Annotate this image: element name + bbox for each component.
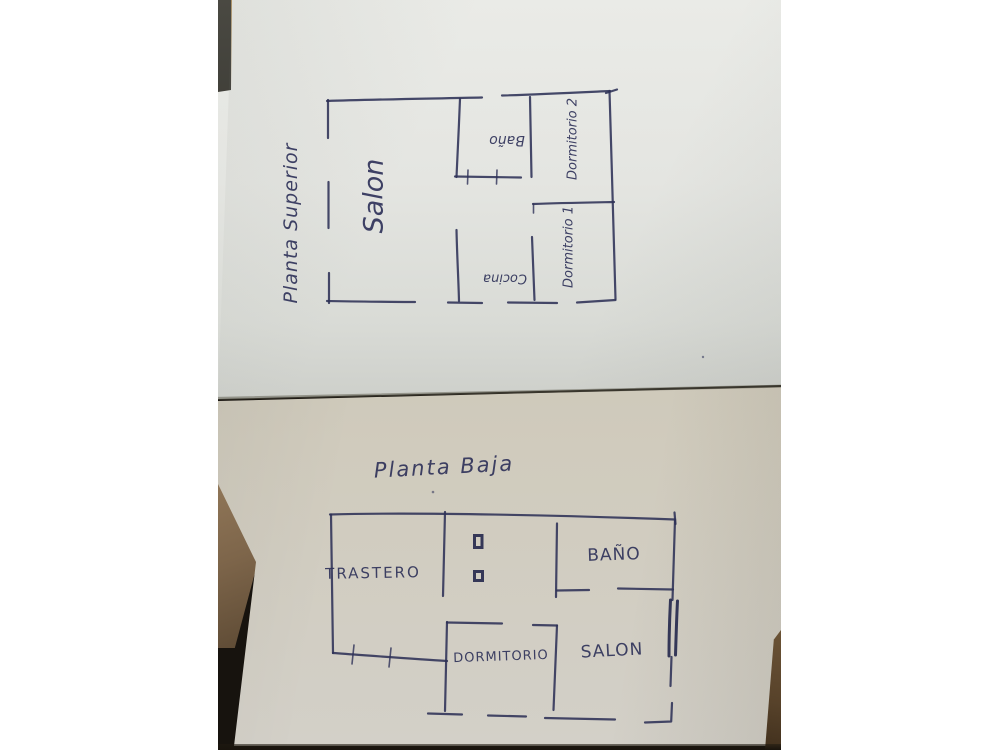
stair-mark xyxy=(475,572,483,581)
wall xyxy=(488,716,526,717)
door-tick xyxy=(352,645,354,664)
pen-dot xyxy=(702,356,704,358)
interior-wall xyxy=(554,626,558,711)
door-leaf xyxy=(669,600,671,656)
upper-plan-title: Planta Superior xyxy=(280,142,302,303)
pen-dot xyxy=(432,491,435,494)
wall xyxy=(545,718,615,720)
door-tick xyxy=(389,648,391,667)
room-label-cocina: Cocina xyxy=(483,271,527,286)
door-leaf xyxy=(676,601,678,655)
photo-of-sketches: Planta Superior Salon Baño Cocina Dormit… xyxy=(218,0,781,750)
wall xyxy=(610,91,616,299)
room-label-bano: BAÑO xyxy=(587,542,641,566)
lower-plan-labels: Planta Baja TRASTERO BAÑO DORMITORIO SAL… xyxy=(324,451,644,666)
room-label-salon: Salon xyxy=(359,159,390,234)
interior-wall xyxy=(533,202,614,204)
wall xyxy=(577,300,616,303)
interior-wall xyxy=(618,589,673,590)
interior-wall xyxy=(443,512,445,596)
lower-plan-title: Planta Baja xyxy=(373,451,515,482)
wall xyxy=(327,98,482,102)
wall xyxy=(673,520,676,601)
wall xyxy=(448,303,482,304)
room-label-trastero: TRASTERO xyxy=(324,563,421,583)
room-label-salon: SALON xyxy=(580,639,644,662)
wall xyxy=(508,303,557,304)
room-label-dormitorio: DORMITORIO xyxy=(453,648,549,666)
interior-wall xyxy=(457,99,461,177)
interior-wall xyxy=(556,524,557,598)
wall xyxy=(428,714,462,715)
wall xyxy=(502,91,610,96)
upper-plan-labels: Planta Superior Salon Baño Cocina Dormit… xyxy=(280,98,581,303)
wall xyxy=(327,301,415,302)
interior-wall xyxy=(447,623,502,624)
wall xyxy=(330,514,675,520)
interior-wall xyxy=(455,177,521,178)
interior-wall xyxy=(557,590,589,591)
room-label-bano: Baño xyxy=(489,132,525,148)
door-tick xyxy=(468,170,469,184)
interior-wall xyxy=(530,97,532,177)
floor-plan-drawings: Planta Superior Salon Baño Cocina Dormit… xyxy=(218,0,781,750)
room-label-dormitorio2: Dormitorio 2 xyxy=(566,98,581,180)
wall xyxy=(645,703,672,723)
lower-plan-walls xyxy=(330,491,678,723)
wall xyxy=(331,515,333,654)
interior-wall xyxy=(532,237,535,300)
interior-wall xyxy=(445,622,447,711)
interior-wall xyxy=(533,625,557,626)
door-tick xyxy=(497,170,498,184)
screenshot: Planta Superior Salon Baño Cocina Dormit… xyxy=(0,0,1000,750)
room-label-dormitorio1: Dormitorio 1 xyxy=(562,206,577,288)
wall xyxy=(671,657,672,686)
interior-wall xyxy=(457,230,460,301)
stair-mark xyxy=(475,536,483,548)
